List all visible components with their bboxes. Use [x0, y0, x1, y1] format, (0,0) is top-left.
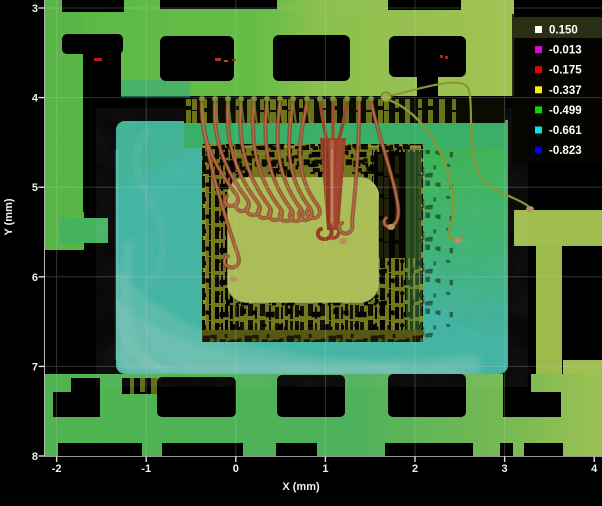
- svg-text:-2: -2: [52, 463, 62, 475]
- svg-text:4: 4: [32, 93, 39, 105]
- svg-text:4: 4: [591, 463, 598, 475]
- svg-text:-0.823: -0.823: [549, 145, 582, 157]
- svg-text:0: 0: [233, 463, 239, 475]
- svg-text:2: 2: [412, 463, 418, 475]
- svg-text:5: 5: [32, 182, 38, 194]
- svg-text:3: 3: [32, 3, 38, 15]
- svg-text:0.150: 0.150: [549, 25, 578, 37]
- svg-text:-0.175: -0.175: [549, 65, 582, 77]
- svg-text:1: 1: [322, 463, 328, 475]
- svg-text:Y (mm): Y (mm): [3, 198, 15, 235]
- svg-text:8: 8: [32, 451, 38, 463]
- svg-text:-0.661: -0.661: [549, 125, 582, 137]
- svg-text:-0.013: -0.013: [549, 45, 582, 57]
- svg-text:7: 7: [32, 361, 38, 373]
- svg-text:-0.499: -0.499: [549, 105, 582, 117]
- svg-text:-0.337: -0.337: [549, 85, 582, 97]
- svg-text:-1: -1: [141, 463, 151, 475]
- svg-text:X (mm): X (mm): [282, 481, 320, 493]
- svg-text:3: 3: [502, 463, 508, 475]
- svg-text:6: 6: [32, 272, 38, 284]
